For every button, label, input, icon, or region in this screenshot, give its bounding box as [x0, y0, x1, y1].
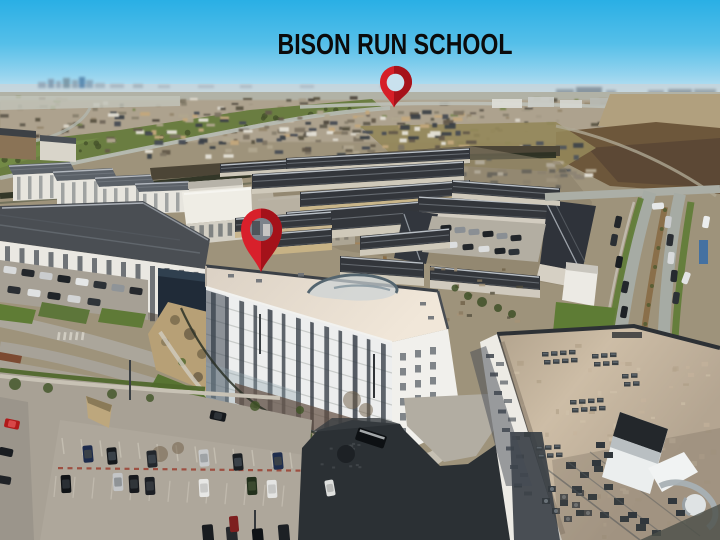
- svg-text:BISON RUN SCHOOL: BISON RUN SCHOOL: [278, 29, 513, 61]
